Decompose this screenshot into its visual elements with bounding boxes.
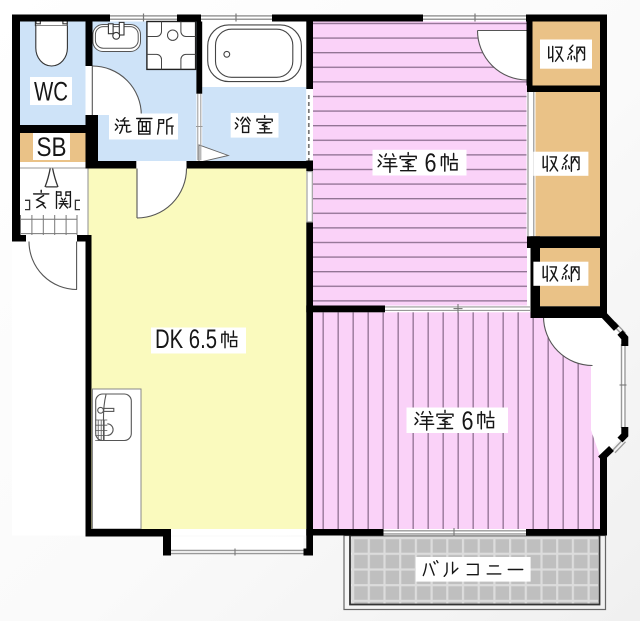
svg-text:WC: WC xyxy=(34,76,68,106)
svg-text:6: 6 xyxy=(462,405,474,435)
svg-text:SB: SB xyxy=(37,132,67,162)
svg-text:DK 6.5: DK 6.5 xyxy=(155,324,217,354)
svg-text:6: 6 xyxy=(425,147,437,177)
